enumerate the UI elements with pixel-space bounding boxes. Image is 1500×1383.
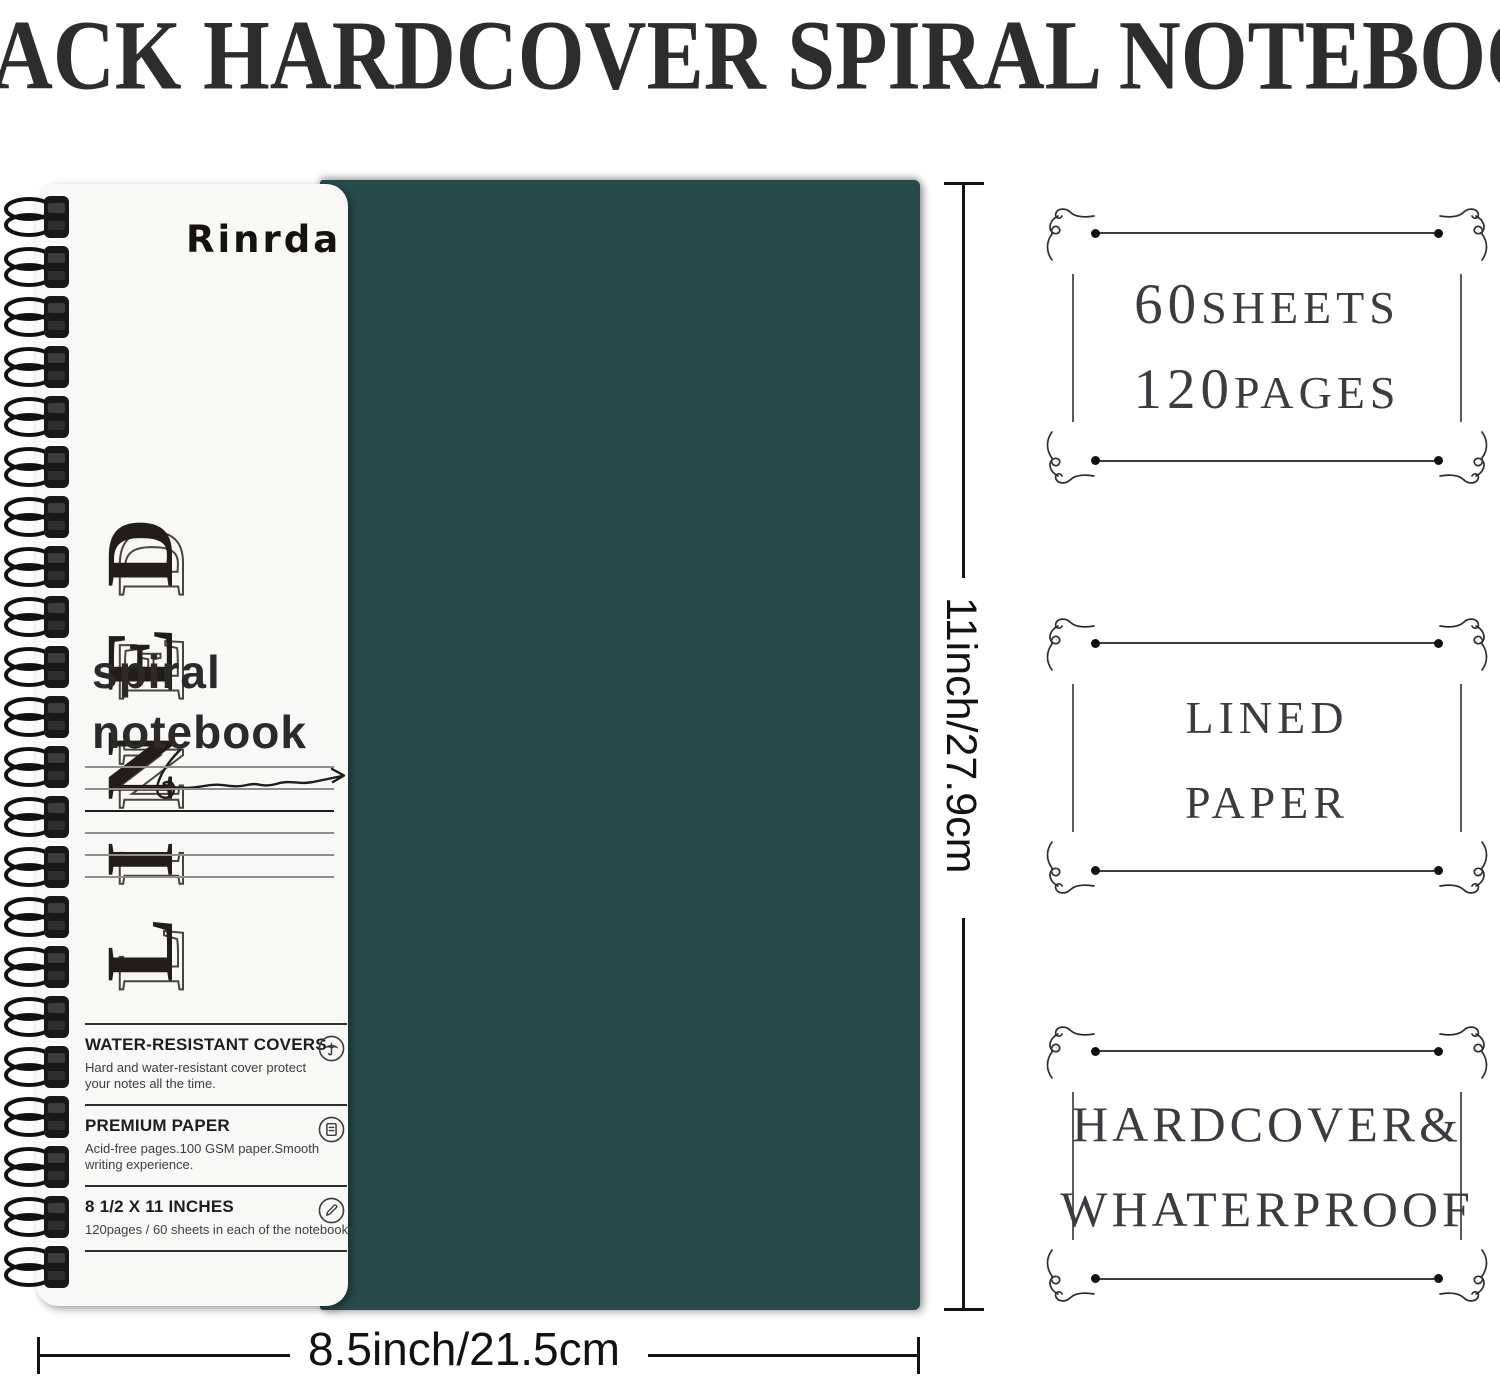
umbrella-icon <box>318 1035 345 1062</box>
flourish-icon <box>1044 1024 1096 1080</box>
frame-rule <box>1096 1050 1438 1052</box>
feature-list: WATER-RESISTANT COVERS Hard and water-re… <box>85 1023 347 1252</box>
ruled-line <box>85 854 334 856</box>
feature-title: PREMIUM PAPER <box>85 1116 347 1136</box>
feature-premium-paper: PREMIUM PAPER Acid-free pages.100 GSM pa… <box>85 1104 347 1185</box>
notebook-cover-green <box>320 180 920 1310</box>
flourish-icon <box>1438 1248 1490 1304</box>
ruled-line <box>85 876 334 878</box>
ruled-lines <box>85 766 334 898</box>
flourish-icon <box>1438 840 1490 896</box>
feature-size: 8 1/2 X 11 INCHES 120pages / 60 sheets i… <box>85 1185 347 1250</box>
height-dimension-tick <box>944 1308 984 1311</box>
ruled-line <box>85 766 334 768</box>
ruled-line <box>85 810 334 812</box>
frame-rule <box>1096 870 1438 872</box>
feature-water-resistant: WATER-RESISTANT COVERS Hard and water-re… <box>85 1023 347 1104</box>
badge-line: 60SHEETS <box>1134 276 1400 333</box>
badge-word: PAGES <box>1234 367 1400 418</box>
badge-word: LINED <box>1186 692 1349 743</box>
feature-desc: 120pages / 60 sheets in each of the note… <box>85 1222 347 1238</box>
product-infographic: 8 PACK HARDCOVER SPIRAL NOTEBOOK Rinrda … <box>0 0 1500 1383</box>
flourish-icon <box>1438 1024 1490 1080</box>
height-dimension-tick <box>944 182 984 185</box>
feature-desc: Hard and water-resistant cover protect y… <box>85 1060 323 1092</box>
pencil-icon <box>318 1197 345 1224</box>
frame-rule <box>1096 642 1438 644</box>
flourish-icon <box>1044 206 1096 262</box>
height-dimension-label: 11inch/27.9cm <box>936 597 985 873</box>
width-dimension-tick <box>37 1337 40 1374</box>
badge-sheets-pages: 60SHEETS 120PAGES <box>1046 212 1488 480</box>
width-dimension-line <box>38 1354 290 1357</box>
spiral-binding-icon <box>0 180 74 1310</box>
badge-lined-paper: LINED PAPER <box>1046 622 1488 890</box>
badge-word: SHEETS <box>1201 282 1400 333</box>
paper-icon <box>318 1116 345 1143</box>
badge-word: HARDCOVER& <box>1072 1096 1462 1152</box>
badge-hardcover-waterproof: HARDCOVER& WHATERPROOF <box>1046 1030 1488 1298</box>
flourish-icon <box>1438 616 1490 672</box>
badge-line: 120PAGES <box>1134 361 1401 418</box>
frame-rule <box>1096 460 1438 462</box>
badge-line: PAPER <box>1185 771 1349 828</box>
badge-line: HARDCOVER& <box>1072 1094 1462 1151</box>
flourish-icon <box>1044 1248 1096 1304</box>
frame-rule <box>1460 274 1462 422</box>
frame-rule <box>1096 1278 1438 1280</box>
height-dimension-line <box>962 918 965 1310</box>
cover-subtitle-line1: spiral <box>92 642 307 702</box>
flourish-icon <box>1438 206 1490 262</box>
badge-word: WHATERPROOF <box>1060 1181 1473 1237</box>
badge-word: PAPER <box>1185 777 1349 828</box>
flourish-icon <box>1438 430 1490 486</box>
badge-number: 60 <box>1134 273 1201 336</box>
flourish-icon <box>1044 840 1096 896</box>
badge-line: LINED <box>1186 686 1349 743</box>
width-dimension-label: 8.5inch/21.5cm <box>308 1322 620 1376</box>
feature-title: 8 1/2 X 11 INCHES <box>85 1197 347 1217</box>
badge-text: 60SHEETS 120PAGES <box>1096 240 1438 454</box>
badge-number: 120 <box>1134 358 1235 421</box>
flourish-icon <box>1044 430 1096 486</box>
brand-logo: Rinrda <box>186 218 341 261</box>
flourish-icon <box>1044 616 1096 672</box>
width-dimension-tick <box>917 1337 920 1374</box>
height-dimension-line <box>962 183 965 578</box>
feature-desc: Acid-free pages.100 GSM paper.Smooth wri… <box>85 1141 323 1173</box>
page-title: 8 PACK HARDCOVER SPIRAL NOTEBOOK <box>0 0 1500 114</box>
frame-rule <box>1072 274 1074 422</box>
badge-text: LINED PAPER <box>1096 650 1438 864</box>
ruled-line <box>85 832 334 834</box>
frame-rule <box>1072 684 1074 832</box>
width-dimension-line <box>648 1354 919 1357</box>
badge-line: WHATERPROOF <box>1060 1179 1473 1236</box>
ruled-line <box>85 788 334 790</box>
badge-text: HARDCOVER& WHATERPROOF <box>1096 1058 1438 1272</box>
feature-title: WATER-RESISTANT COVERS <box>85 1035 347 1055</box>
frame-rule <box>1460 684 1462 832</box>
frame-rule <box>1096 232 1438 234</box>
